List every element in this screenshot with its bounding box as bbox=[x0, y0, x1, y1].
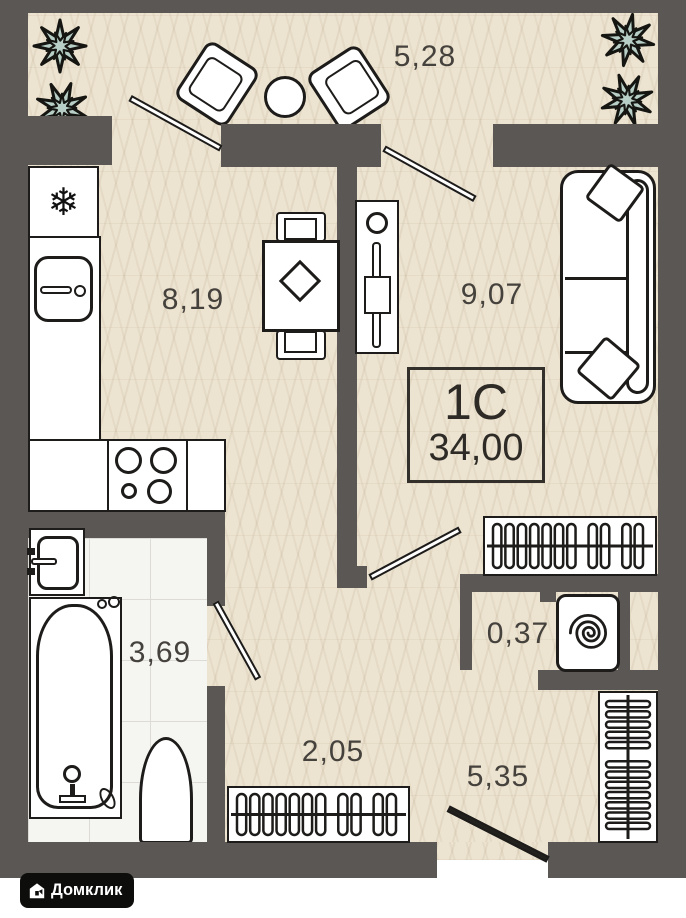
wall-segment bbox=[658, 0, 686, 878]
tv-stand-knob bbox=[366, 212, 388, 234]
burner bbox=[147, 479, 172, 504]
wardrobe-corridor bbox=[598, 691, 658, 843]
domklik-logo: Домклик bbox=[20, 873, 134, 908]
domklik-logo-text: Домклик bbox=[51, 881, 122, 900]
wall-balcony-right bbox=[493, 124, 658, 167]
bathtub bbox=[29, 597, 122, 819]
sofa bbox=[560, 170, 656, 404]
wardrobe-hallway bbox=[227, 786, 410, 843]
burner bbox=[121, 483, 137, 499]
drain-base bbox=[59, 795, 86, 803]
area-label-niche: 0,37 bbox=[487, 617, 549, 651]
fridge: ❄ bbox=[28, 166, 99, 238]
balcony-round-table bbox=[264, 76, 306, 118]
area-label-kitchen: 8,19 bbox=[162, 283, 224, 317]
burner bbox=[115, 447, 142, 474]
area-label-balcony: 5,28 bbox=[394, 40, 456, 74]
hanger-rail-icon bbox=[229, 788, 408, 841]
sink-tap-detail bbox=[27, 548, 35, 555]
wall-washer-nub bbox=[540, 592, 556, 602]
area-label-corridor: 5,35 bbox=[467, 760, 529, 794]
armchair-seat bbox=[186, 54, 245, 114]
wardrobe-living bbox=[483, 516, 657, 576]
area-label-living: 9,07 bbox=[461, 278, 523, 312]
tap-dot bbox=[97, 599, 107, 609]
wall-niche-top bbox=[460, 574, 658, 592]
table-decor-diamond bbox=[279, 260, 321, 302]
tv-box bbox=[364, 276, 391, 314]
wall-niche-left bbox=[460, 592, 472, 670]
wall-balcony-center bbox=[221, 124, 381, 167]
bathtub-drain bbox=[63, 765, 81, 783]
plant-icon bbox=[593, 5, 663, 75]
dining-chair bbox=[276, 330, 326, 360]
wall-segment bbox=[0, 0, 686, 13]
stove bbox=[107, 439, 188, 512]
tap-dot bbox=[108, 596, 120, 608]
dining-table bbox=[262, 240, 340, 332]
overflow-oval bbox=[96, 785, 119, 811]
wall-bathroom-right-upper bbox=[207, 510, 225, 606]
chair-seat bbox=[284, 331, 317, 353]
plant-icon bbox=[30, 16, 90, 76]
unit-type-label: 1С bbox=[410, 376, 542, 428]
tv-stand bbox=[355, 200, 399, 354]
bathroom-faucet bbox=[31, 558, 57, 565]
wall-segment bbox=[0, 0, 28, 878]
burner bbox=[150, 447, 177, 474]
sofa-cushion-line bbox=[565, 277, 627, 280]
dining-chair bbox=[276, 212, 326, 242]
washer-drum-icon bbox=[564, 609, 612, 657]
area-label-bathroom: 3,69 bbox=[129, 636, 191, 670]
wall-bottom-right bbox=[548, 842, 686, 878]
hanger-rail-icon bbox=[600, 693, 656, 841]
sink-tap-detail bbox=[27, 568, 35, 575]
floor-plan: ❄ bbox=[0, 0, 686, 918]
area-label-hallway: 2,05 bbox=[302, 735, 364, 769]
wall-corridor-top bbox=[538, 670, 658, 690]
hanger-rail-icon bbox=[485, 518, 655, 574]
unit-info-box: 1С 34,00 bbox=[407, 367, 545, 483]
domklik-house-icon bbox=[28, 882, 46, 900]
unit-total-area: 34,00 bbox=[410, 428, 542, 468]
snowflake-icon: ❄ bbox=[48, 180, 80, 224]
wall-stub bbox=[337, 566, 367, 588]
wall-bathroom-right-lower bbox=[207, 686, 225, 846]
chair-seat bbox=[284, 218, 317, 240]
kitchen-faucet-knob bbox=[74, 285, 86, 297]
washing-machine bbox=[556, 594, 620, 672]
kitchen-faucet bbox=[40, 286, 72, 294]
wall-balcony-left bbox=[28, 116, 112, 165]
wall-center-vertical bbox=[337, 124, 357, 576]
